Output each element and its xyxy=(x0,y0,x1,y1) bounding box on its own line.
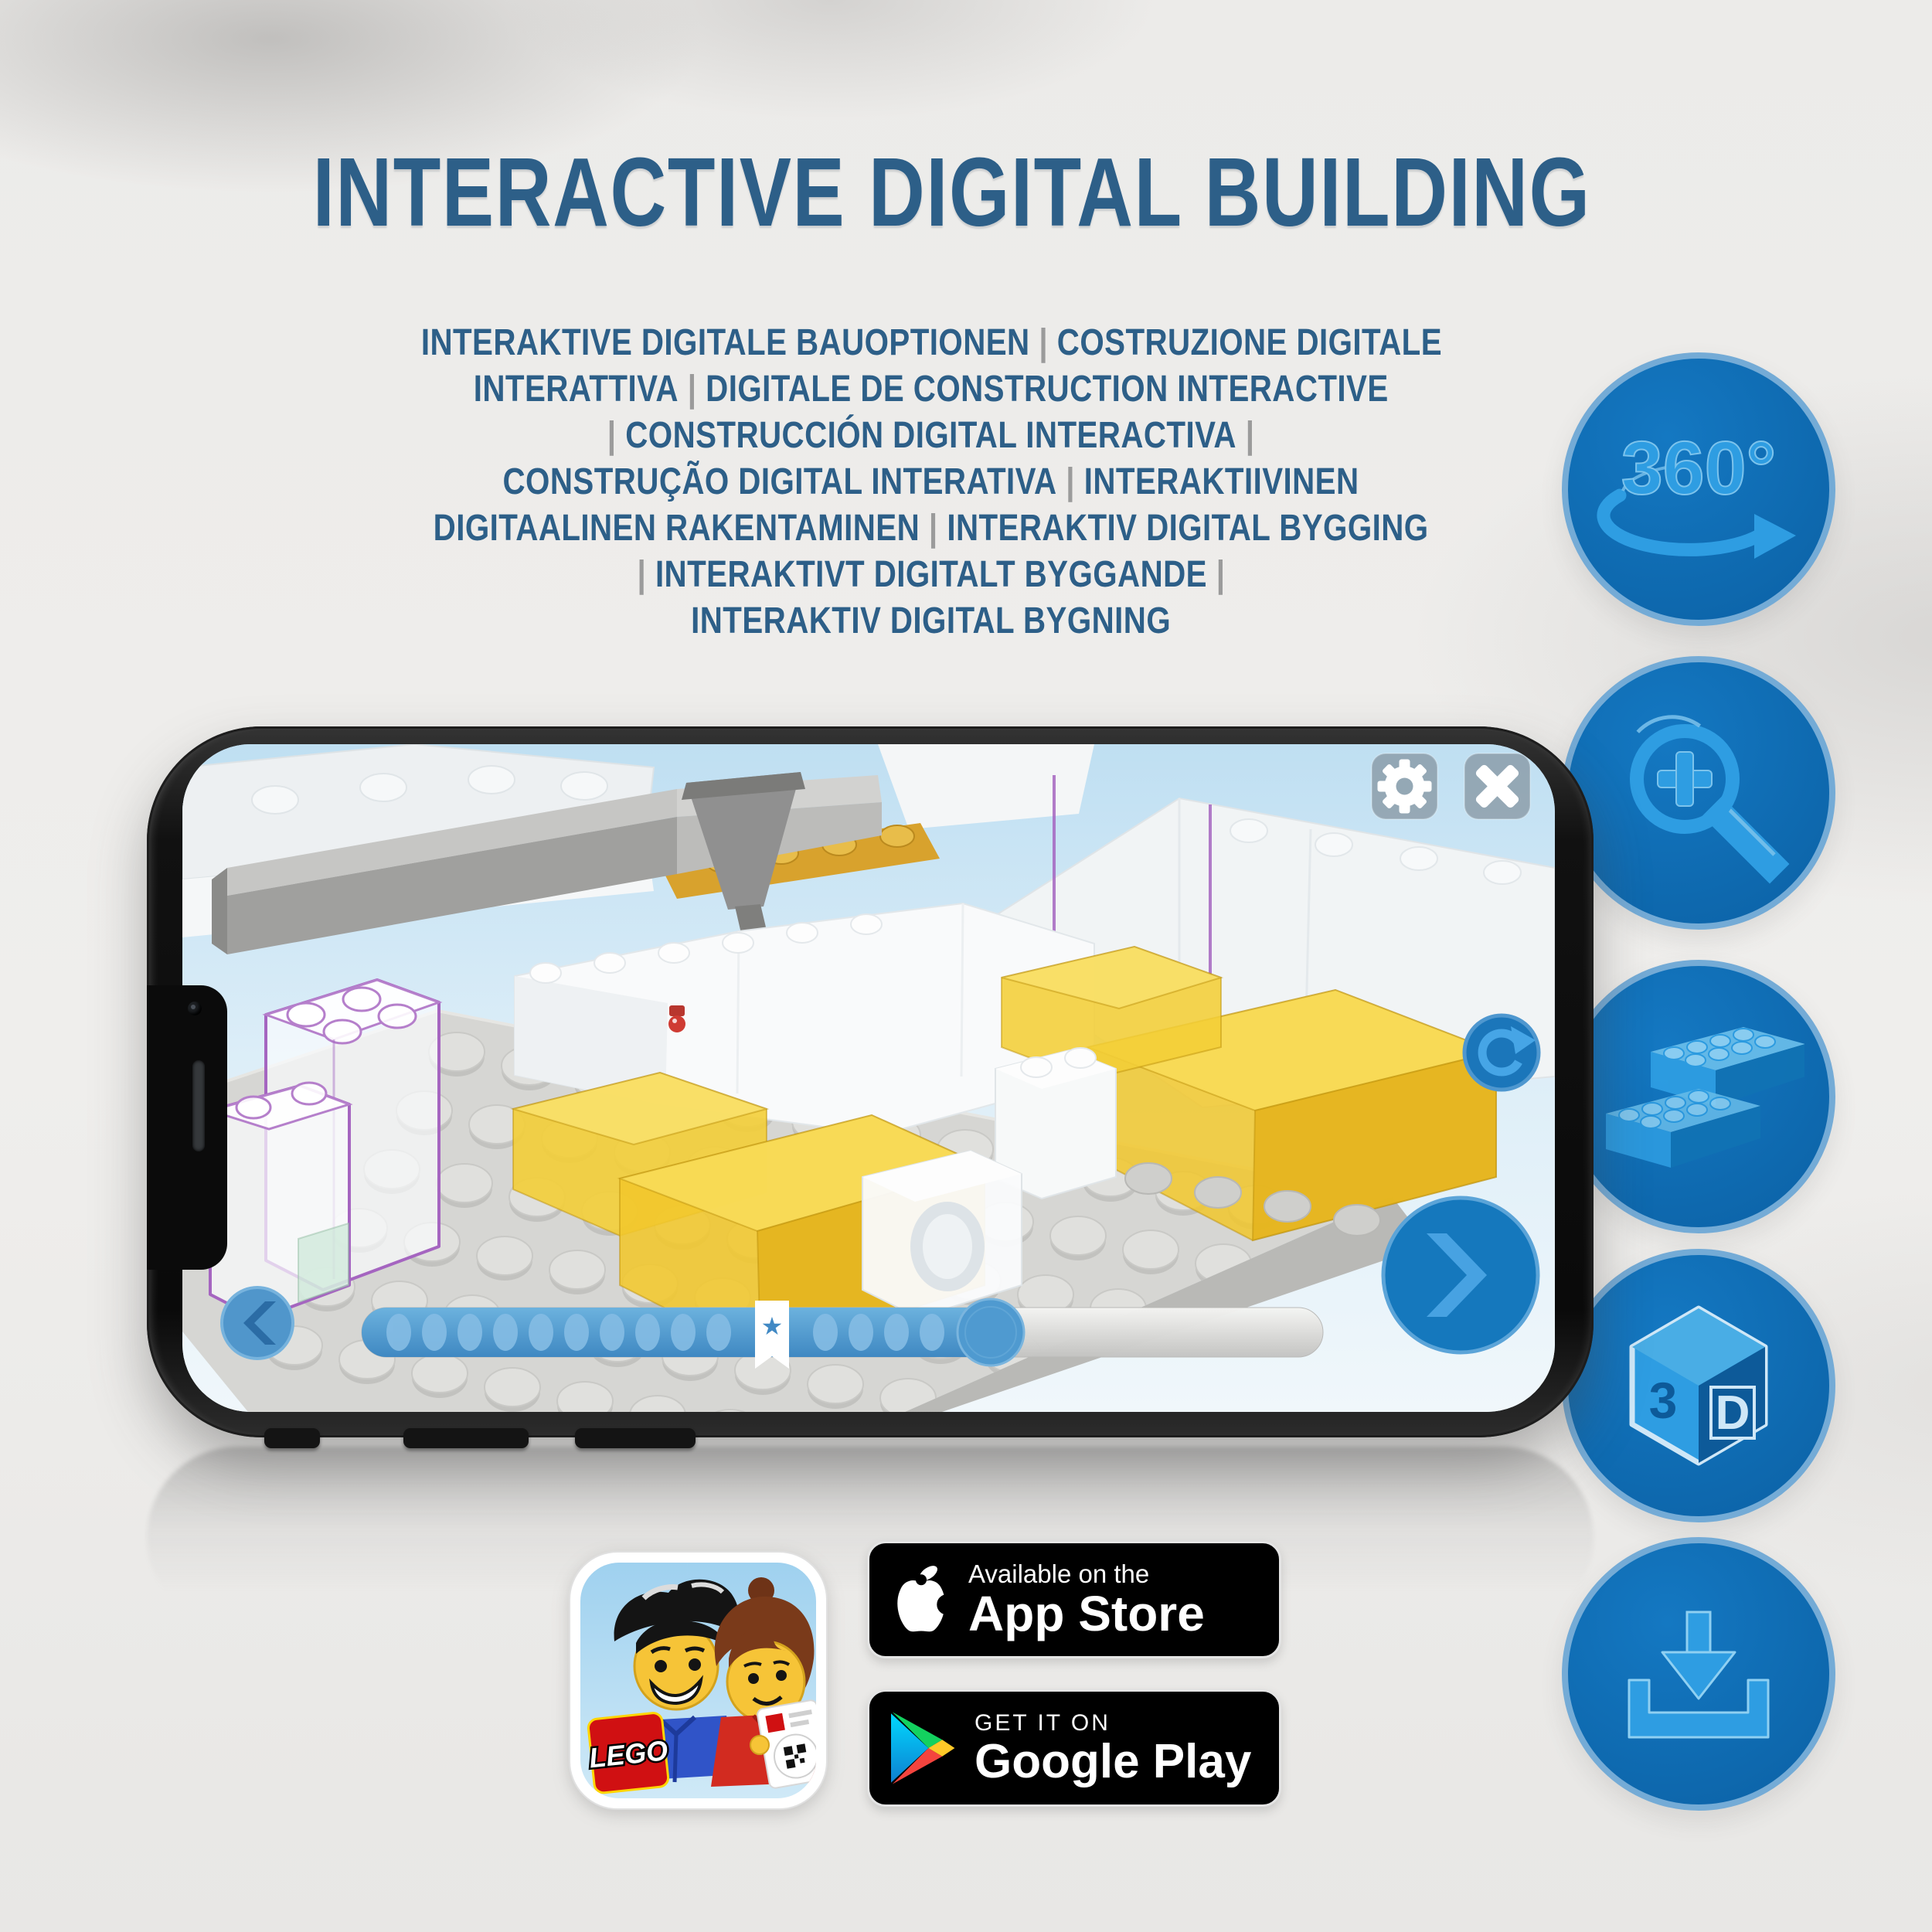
earpiece-speaker xyxy=(192,1060,205,1151)
label-d: D xyxy=(1716,1386,1750,1440)
close-button[interactable] xyxy=(1464,753,1530,819)
download-glyph xyxy=(1593,1568,1804,1780)
apple-icon xyxy=(891,1563,951,1637)
front-camera xyxy=(188,1002,202,1015)
3d-cube-glyph: 3 D xyxy=(1593,1280,1804,1492)
progress-thumb[interactable] xyxy=(957,1299,1024,1366)
rotate-view-button[interactable] xyxy=(1464,1015,1539,1090)
lego-logo: LEGO xyxy=(585,1712,671,1794)
progress-step-dot xyxy=(671,1314,696,1351)
google-play-bottom-text: Google Play xyxy=(975,1737,1251,1786)
progress-step-dot xyxy=(493,1314,518,1351)
progress-step-dot xyxy=(706,1314,731,1351)
phone-mockup: ★ xyxy=(147,726,1594,1437)
app-store-badge[interactable]: Available on the App Store xyxy=(867,1541,1281,1658)
3d-view-icon: 3 D xyxy=(1562,1249,1835,1522)
bricks-icon xyxy=(1562,960,1835,1233)
bookmark-star: ★ xyxy=(761,1311,784,1341)
rotate-360-icon: 360° xyxy=(1562,352,1835,626)
volume-button xyxy=(403,1428,529,1448)
page-background: INTERACTIVE DIGITAL BUILDING INTERAKTIVE… xyxy=(0,0,1932,1932)
progress-step-dot xyxy=(849,1314,873,1351)
progress-step-dot xyxy=(422,1314,447,1351)
side-button xyxy=(264,1428,320,1448)
lego-app-icon[interactable]: LEGO xyxy=(568,1550,828,1811)
google-play-icon xyxy=(891,1711,957,1785)
progress-step-dot xyxy=(386,1314,411,1351)
progress-step-dot xyxy=(529,1314,553,1351)
next-button[interactable] xyxy=(1383,1198,1538,1352)
progress-step-dot xyxy=(457,1314,482,1351)
white-footboard xyxy=(862,1151,1022,1318)
google-play-top-text: GET IT ON xyxy=(975,1710,1251,1737)
progress-step-dot xyxy=(635,1314,660,1351)
bricks-glyph xyxy=(1593,991,1804,1202)
power-button xyxy=(575,1428,696,1448)
progress-step-dot xyxy=(884,1314,909,1351)
progress-step-dot xyxy=(813,1314,838,1351)
settings-button[interactable] xyxy=(1372,753,1437,819)
subtitle-line: INTERAKTIVE DIGITALE BAUOPTIONEN|COSTRUZ… xyxy=(0,320,1862,366)
subtitle-line: INTERATTIVA|DIGITALE DE CONSTRUCTION INT… xyxy=(0,366,1862,413)
page-title: INTERACTIVE DIGITAL BUILDING xyxy=(0,136,1904,248)
phone-notch xyxy=(147,985,227,1270)
building-scene: ★ xyxy=(182,744,1555,1412)
label-360: 360° xyxy=(1621,426,1777,510)
rotate-360-glyph: 360° xyxy=(1593,383,1804,595)
zoom-in-icon xyxy=(1562,656,1835,930)
label-3: 3 xyxy=(1649,1372,1678,1429)
google-play-badge[interactable]: GET IT ON Google Play xyxy=(867,1689,1281,1807)
magnifier-glyph xyxy=(1593,687,1804,899)
app-screen: ★ xyxy=(182,744,1555,1412)
app-store-top-text: Available on the xyxy=(968,1560,1205,1589)
subtitle-line: INTERAKTIV DIGITAL BYGNING xyxy=(0,598,1862,645)
progress-step-dot xyxy=(564,1314,589,1351)
download-icon xyxy=(1562,1537,1835,1811)
progress-step-dot xyxy=(600,1314,624,1351)
red-accent xyxy=(668,1005,685,1032)
back-button[interactable] xyxy=(222,1287,293,1359)
progress-step-dot xyxy=(920,1314,944,1351)
app-store-bottom-text: App Store xyxy=(968,1589,1205,1639)
